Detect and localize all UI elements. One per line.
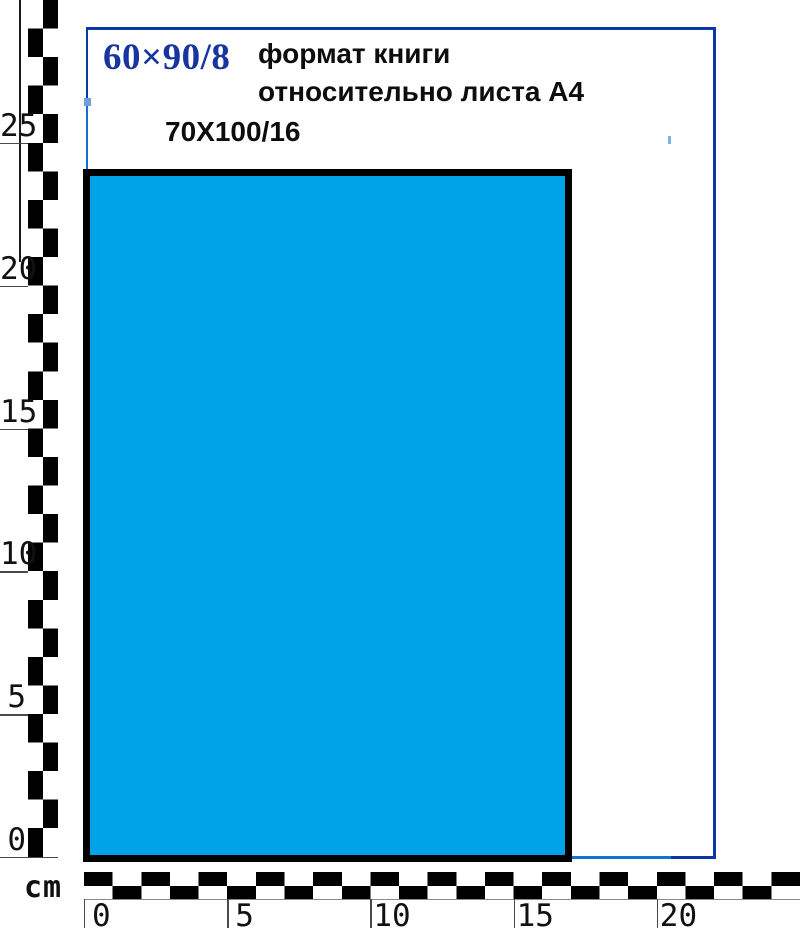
a4-outline-bottom-border-light [572,856,671,859]
horizontal-ruler [84,872,800,899]
book-format-rectangle [83,169,572,862]
vertical-ruler-label-25: 25 [0,111,26,142]
vertical-ruler-label-0: 0 [0,825,26,856]
horizontal-ruler-label-20: 20 [660,901,697,930]
vertical-ruler-label-15: 15 [0,397,26,428]
vertical-ruler-label-20: 20 [0,254,26,285]
page-canvas: 60×90/8 формат книги относительно листа … [0,0,800,930]
vertical-ruler-label-5: 5 [0,682,26,713]
a4-outline-left-border-lower [86,106,89,169]
horizontal-ruler-tick-15 [514,899,515,928]
a4-outline-left-handle-artifact [84,98,91,106]
blue-dash-artifact [668,136,671,144]
horizontal-ruler-checker-row-top [84,872,800,886]
horizontal-ruler-tick-20 [657,899,658,928]
vertical-ruler-checker-column-right [43,0,58,857]
unit-label: cm [24,870,60,905]
horizontal-ruler-label-10: 10 [373,901,410,930]
a4-outline-bottom-border-dark [671,856,716,859]
horizontal-ruler-tick-10 [370,899,371,928]
a4-outline-top-border [86,27,717,30]
horizontal-ruler-tick-0 [84,899,85,928]
horizontal-ruler-label-0: 0 [92,901,111,930]
a4-outline-right-border [713,27,716,859]
format-60x90-label: 60×90/8 [103,36,230,79]
horizontal-ruler-label-5: 5 [235,901,254,930]
horizontal-ruler-checker-row-bottom [84,886,800,900]
horizontal-ruler-tick-5 [227,899,228,928]
a4-outline-left-border-upper [86,27,89,98]
horizontal-ruler-label-15: 15 [517,901,554,930]
caption-line-2: относительно листа А4 [258,76,584,108]
vertical-ruler-label-10: 10 [0,539,26,570]
format-70x100-label: 70X100/16 [165,116,300,148]
caption-line-1: формат книги [258,38,450,70]
